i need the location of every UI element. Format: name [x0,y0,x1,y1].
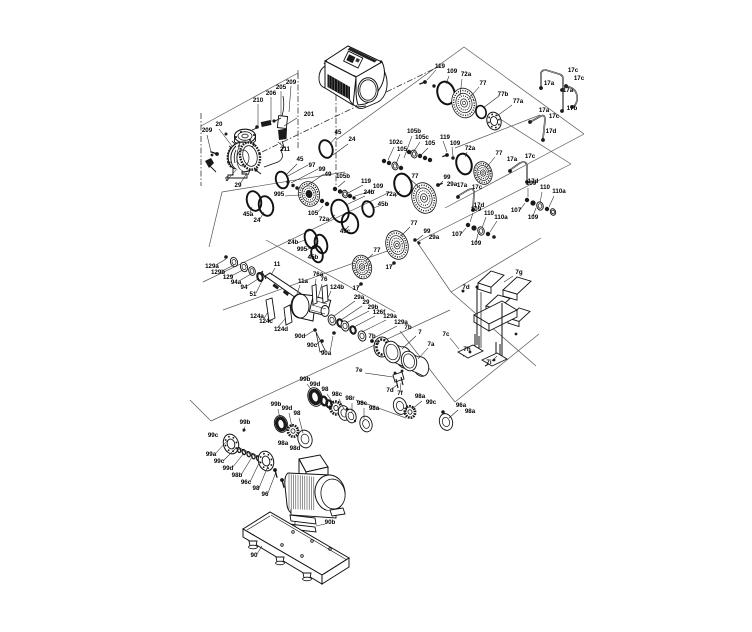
svg-text:105b: 105b [336,173,350,180]
svg-text:77: 77 [496,150,503,157]
svg-text:109: 109 [373,183,384,190]
svg-text:24b: 24b [364,189,375,196]
svg-text:17c: 17c [568,67,579,74]
svg-text:94: 94 [241,284,248,291]
svg-text:29a: 29a [429,234,440,241]
svg-text:99a: 99a [206,451,217,458]
svg-text:90b: 90b [325,519,336,526]
svg-text:206: 206 [266,90,277,97]
svg-text:7a: 7a [428,341,435,348]
svg-text:17c: 17c [574,75,585,82]
svg-text:98d: 98d [290,445,301,452]
svg-text:124b: 124b [330,284,344,291]
svg-text:90: 90 [251,552,258,559]
svg-text:105: 105 [425,140,436,147]
svg-text:995: 995 [274,191,285,198]
svg-text:7b: 7b [404,324,411,331]
svg-text:45b: 45b [378,201,389,208]
svg-text:7f: 7f [397,390,403,397]
svg-text:201: 201 [304,111,315,118]
svg-text:90d: 90d [295,333,306,340]
svg-text:96c: 96c [241,479,252,486]
svg-text:98: 98 [294,410,301,417]
svg-text:17c: 17c [549,113,560,120]
svg-text:98a: 98a [369,405,380,412]
svg-text:24b: 24b [288,239,299,246]
svg-text:209: 209 [286,79,297,86]
svg-text:99b: 99b [240,419,251,426]
svg-text:51: 51 [250,291,257,298]
svg-text:109: 109 [447,68,458,75]
svg-text:995: 995 [297,246,308,253]
svg-text:124a: 124a [250,313,264,320]
svg-text:7e: 7e [356,367,363,374]
svg-text:49: 49 [325,171,332,178]
svg-text:17c: 17c [525,153,536,160]
svg-text:45a: 45a [243,211,254,218]
svg-text:17a: 17a [563,87,574,94]
svg-text:17a: 17a [544,80,555,87]
svg-text:45: 45 [335,129,342,136]
svg-text:110a: 110a [494,214,508,221]
svg-text:98c: 98c [357,400,368,407]
svg-text:209: 209 [202,127,213,134]
svg-text:77: 77 [374,247,381,254]
svg-text:7d: 7d [462,284,469,291]
svg-text:17d: 17d [546,128,557,135]
svg-text:7: 7 [418,329,422,336]
svg-text:98c: 98c [332,391,343,398]
svg-text:77: 77 [411,220,418,227]
svg-text:76: 76 [321,276,328,283]
svg-text:119: 119 [361,178,372,185]
svg-text:77b: 77b [498,91,509,98]
svg-text:24: 24 [349,136,356,143]
svg-text:99d: 99d [223,465,234,472]
svg-text:77: 77 [412,173,419,180]
svg-text:72a: 72a [461,71,472,78]
svg-text:99c: 99c [208,432,219,439]
svg-text:99: 99 [444,174,451,181]
svg-text:109: 109 [450,140,461,147]
svg-text:97: 97 [309,162,316,169]
svg-text:99b: 99b [271,401,282,408]
svg-text:107: 107 [452,231,463,238]
svg-text:98a: 98a [415,393,426,400]
svg-text:99d: 99d [282,405,293,412]
svg-text:98a: 98a [465,408,476,415]
svg-text:45: 45 [297,156,304,163]
svg-text:24: 24 [254,217,261,224]
svg-text:7g: 7g [515,269,522,276]
svg-text:7b: 7b [368,333,375,340]
svg-text:211: 211 [280,146,291,153]
svg-text:11a: 11a [298,278,309,285]
svg-text:98b: 98b [232,472,243,479]
svg-text:7h: 7h [463,346,470,353]
svg-text:110a: 110a [552,188,566,195]
svg-text:124d: 124d [274,326,288,333]
svg-text:102c: 102c [389,139,403,146]
svg-text:107: 107 [511,207,522,214]
svg-text:98: 98 [322,386,329,393]
svg-text:7i: 7i [486,359,491,366]
svg-text:110: 110 [484,210,495,217]
svg-text:119: 119 [435,63,446,70]
svg-text:109: 109 [526,180,537,187]
svg-text:110: 110 [540,184,551,191]
svg-text:49c: 49c [340,228,351,235]
svg-text:17a: 17a [507,156,518,163]
svg-text:9: 9 [225,176,229,183]
svg-text:210: 210 [253,97,264,104]
svg-text:105: 105 [308,210,319,217]
svg-text:98: 98 [253,485,260,492]
svg-text:11: 11 [274,261,281,268]
svg-text:17b: 17b [567,105,578,112]
svg-text:17c: 17c [472,184,483,191]
svg-text:99c: 99c [214,458,225,465]
svg-text:98r: 98r [345,395,355,402]
svg-text:7c: 7c [443,331,450,338]
svg-text:72a: 72a [319,216,330,223]
svg-text:77a: 77a [513,98,524,105]
svg-text:20: 20 [216,121,223,128]
svg-text:90c: 90c [307,342,318,349]
svg-text:99d: 99d [310,381,321,388]
svg-text:98a: 98a [278,440,289,447]
svg-text:77: 77 [480,80,487,87]
svg-text:72a: 72a [465,145,476,152]
svg-text:109: 109 [471,206,482,213]
svg-text:99c: 99c [426,399,437,406]
svg-text:7d: 7d [386,387,393,394]
svg-text:96: 96 [262,491,269,498]
svg-text:17a: 17a [457,182,468,189]
